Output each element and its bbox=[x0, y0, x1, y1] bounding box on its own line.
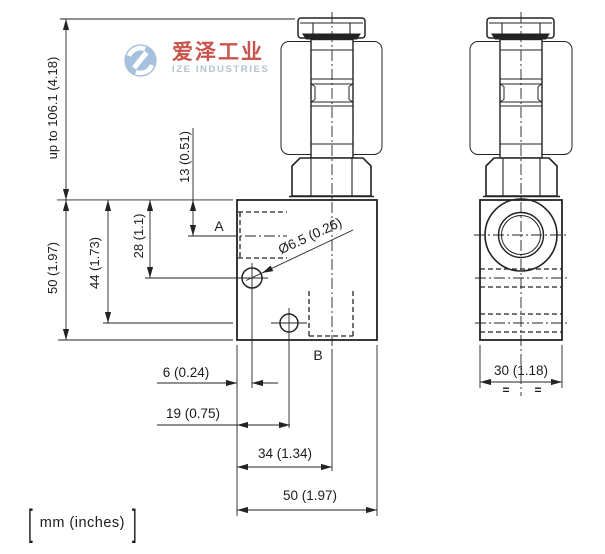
symmetry-mark-left: = bbox=[502, 383, 509, 397]
dim-hole-a-depth: 28 (1.1) bbox=[131, 214, 146, 259]
valve-technical-drawing: up to 106.1 (4.18) 50 (1.97) 44 (1.73) 2… bbox=[0, 0, 605, 554]
symmetry-mark-right: = bbox=[534, 383, 541, 397]
units-bracket-left: [ bbox=[27, 504, 34, 541]
dim-body-width: 50 (1.97) bbox=[283, 488, 337, 503]
dim-cartridge-axis-offset: 34 (1.34) bbox=[258, 446, 312, 461]
units-label: mm (inches) bbox=[34, 515, 131, 531]
units-bracket-right: ] bbox=[131, 504, 138, 541]
dim-body-height: 50 (1.97) bbox=[45, 242, 60, 294]
cartridge-hex-front bbox=[289, 158, 374, 197]
drawing-canvas: 爱泽工业 IZE INDUSTRIES bbox=[0, 0, 605, 554]
port-b-label: B bbox=[313, 347, 322, 363]
top-nut-side bbox=[487, 18, 554, 40]
cartridge-hex-side bbox=[483, 158, 560, 197]
top-nut-front bbox=[298, 18, 365, 40]
dim-hole-b-depth: 44 (1.73) bbox=[87, 237, 102, 289]
dim-hole-b-offset: 19 (0.75) bbox=[166, 406, 220, 421]
dim-hole-a-offset: 6 (0.24) bbox=[163, 365, 210, 380]
units-note: [ mm (inches) ] bbox=[27, 501, 138, 545]
port-a-label: A bbox=[214, 218, 224, 234]
side-view bbox=[470, 12, 572, 396]
dim-side-width: 30 (1.18) bbox=[494, 363, 548, 378]
dim-port-a-axis: 13 (0.51) bbox=[177, 131, 192, 183]
dim-total-height: up to 106.1 (4.18) bbox=[45, 57, 60, 160]
